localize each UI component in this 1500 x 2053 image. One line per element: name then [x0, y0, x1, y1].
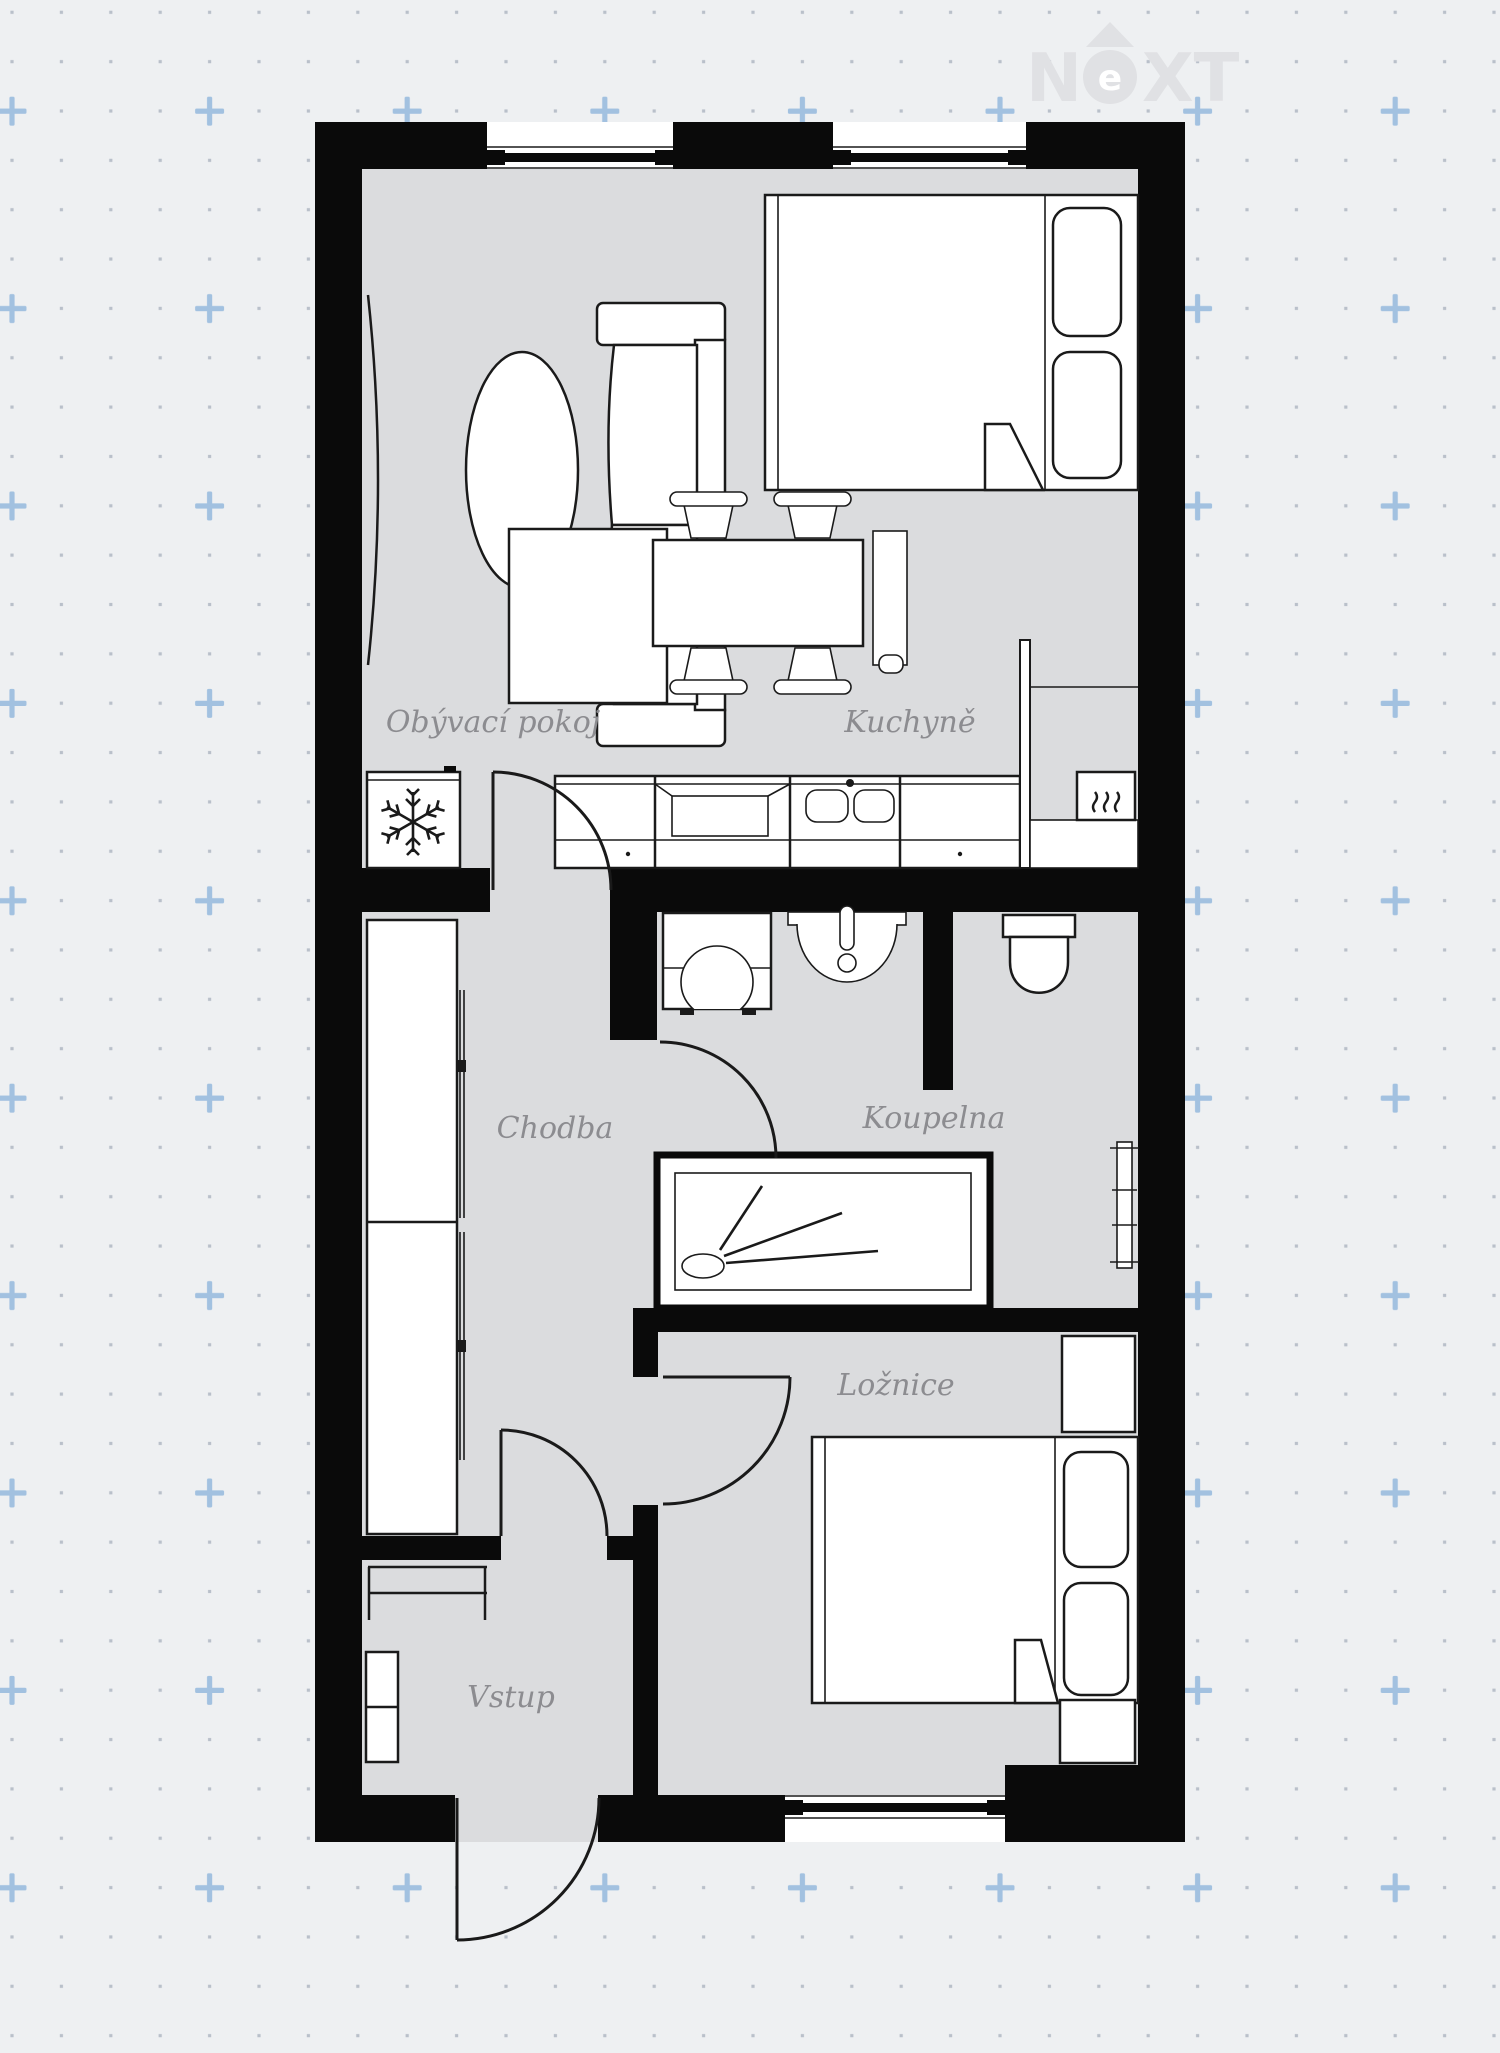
pillow: [1064, 1583, 1128, 1695]
tv-stand: [879, 655, 903, 673]
square-side-table: [509, 529, 667, 703]
daybed: [765, 195, 1138, 490]
floor-plan-svg: N e XT: [0, 0, 1500, 2053]
label-living-room: Obývací pokoj: [386, 705, 600, 740]
pillow: [1053, 352, 1121, 478]
wall-bottom-right-block: [1005, 1765, 1185, 1842]
hallway-furniture: [367, 920, 466, 1534]
label-entrance: Vstup: [467, 1680, 555, 1715]
wall-hall-entrance-stub: [607, 1536, 633, 1560]
kitchen-counter: [555, 776, 1020, 868]
shower-drain: [682, 1254, 724, 1278]
window-bedroom: [785, 1795, 1005, 1842]
dining-table: [653, 540, 863, 646]
faucet: [840, 906, 854, 950]
pillow: [1064, 1452, 1128, 1567]
wall-top: [315, 122, 1185, 169]
washing-machine: [663, 913, 771, 1018]
nightstand: [1062, 1336, 1135, 1432]
wall-left: [315, 122, 362, 1842]
wardrobe-handle: [457, 1340, 466, 1352]
logo-letter-e: e: [1098, 58, 1122, 99]
double-bed: [812, 1437, 1138, 1703]
opening-entrance: [455, 1795, 598, 1842]
kitchen-partition: [1020, 640, 1030, 868]
label-hallway: Chodba: [497, 1111, 614, 1146]
wall-hall-entrance: [362, 1536, 501, 1560]
opening-living-hall: [490, 868, 610, 912]
entrance-cabinet: [366, 1652, 398, 1762]
tv-panel: [873, 531, 907, 673]
window-kitchen: [833, 122, 1026, 169]
label-bathroom: Koupelna: [862, 1101, 1006, 1136]
oven: [1077, 772, 1135, 820]
wardrobe: [367, 920, 466, 1534]
wall-living-hall: [362, 868, 1138, 912]
opening-bedroom: [633, 1377, 658, 1505]
wardrobe-handle: [457, 1060, 466, 1072]
wall-bathroom-stub: [923, 912, 953, 1090]
label-kitchen: Kuchyně: [843, 705, 975, 740]
nightstand: [1060, 1700, 1135, 1763]
shower: [657, 1155, 990, 1308]
wall-bathroom-bedroom: [633, 1308, 1138, 1332]
wall-hall-bathroom: [610, 912, 657, 1040]
logo-letters-xt: XT: [1142, 39, 1240, 117]
logo-letter-n: N: [1026, 39, 1082, 117]
label-bedroom: Ložnice: [836, 1368, 954, 1403]
window-living-room: [487, 122, 673, 169]
wall-right: [1138, 122, 1185, 1842]
pillow: [1053, 208, 1121, 336]
fridge: [367, 766, 460, 868]
